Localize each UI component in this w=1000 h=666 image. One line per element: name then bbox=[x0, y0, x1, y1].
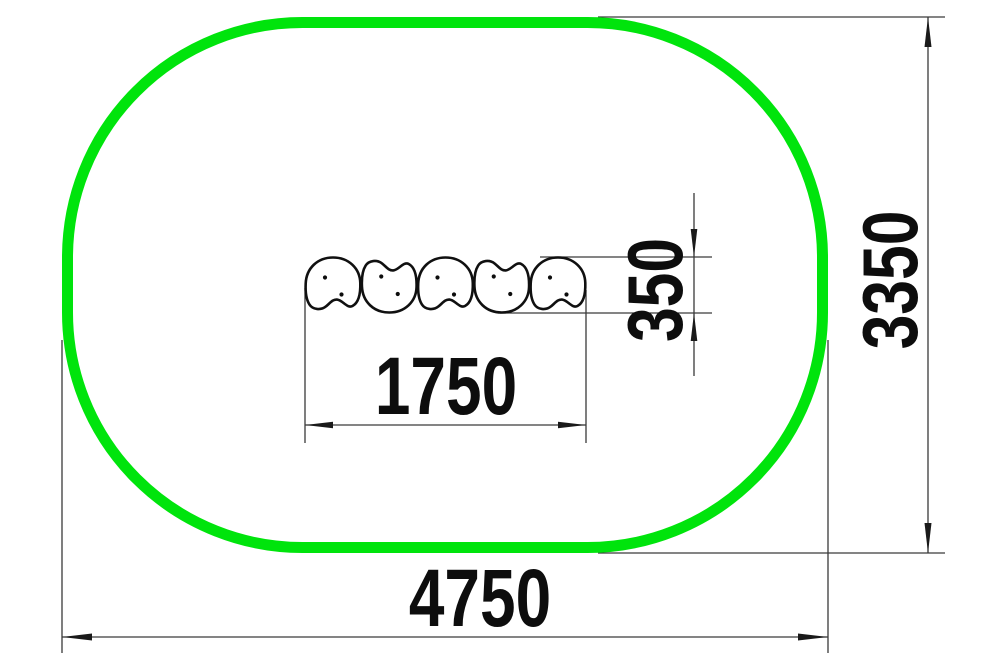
pod-dot bbox=[435, 275, 439, 279]
pod-height-dimension-label: 350 bbox=[616, 238, 694, 342]
pod-row-width-dimension-label: 1750 bbox=[375, 346, 517, 428]
arrowhead-pod-row-left bbox=[305, 422, 333, 429]
overall-width-dimension-label: 4750 bbox=[409, 558, 551, 640]
technical-drawing-canvas: 1750 4750 350 3350 bbox=[0, 0, 1000, 666]
pod-5 bbox=[531, 258, 586, 310]
arrowhead-overall-height-bottom bbox=[925, 523, 932, 553]
pod-1 bbox=[306, 258, 361, 310]
arrowhead-overall-height-top bbox=[925, 17, 932, 47]
pod-dot bbox=[379, 274, 383, 278]
pod-dot bbox=[564, 292, 568, 296]
pod-2 bbox=[362, 261, 417, 313]
pod-dot bbox=[548, 275, 552, 279]
pod-dot bbox=[339, 292, 343, 296]
pod-dot bbox=[396, 292, 400, 296]
arrowhead-pod-row-right bbox=[558, 422, 586, 429]
arrowhead-overall-width-right bbox=[798, 634, 828, 641]
pod-dot bbox=[452, 292, 456, 296]
pod-3 bbox=[418, 258, 473, 310]
pod-4 bbox=[474, 261, 529, 313]
pod-dot bbox=[508, 292, 512, 296]
overall-height-dimension-label: 3350 bbox=[851, 211, 929, 350]
pod-dot bbox=[492, 274, 496, 278]
arrowhead-overall-width-left bbox=[62, 634, 92, 641]
pod-row bbox=[306, 258, 586, 313]
pod-dot bbox=[323, 275, 327, 279]
